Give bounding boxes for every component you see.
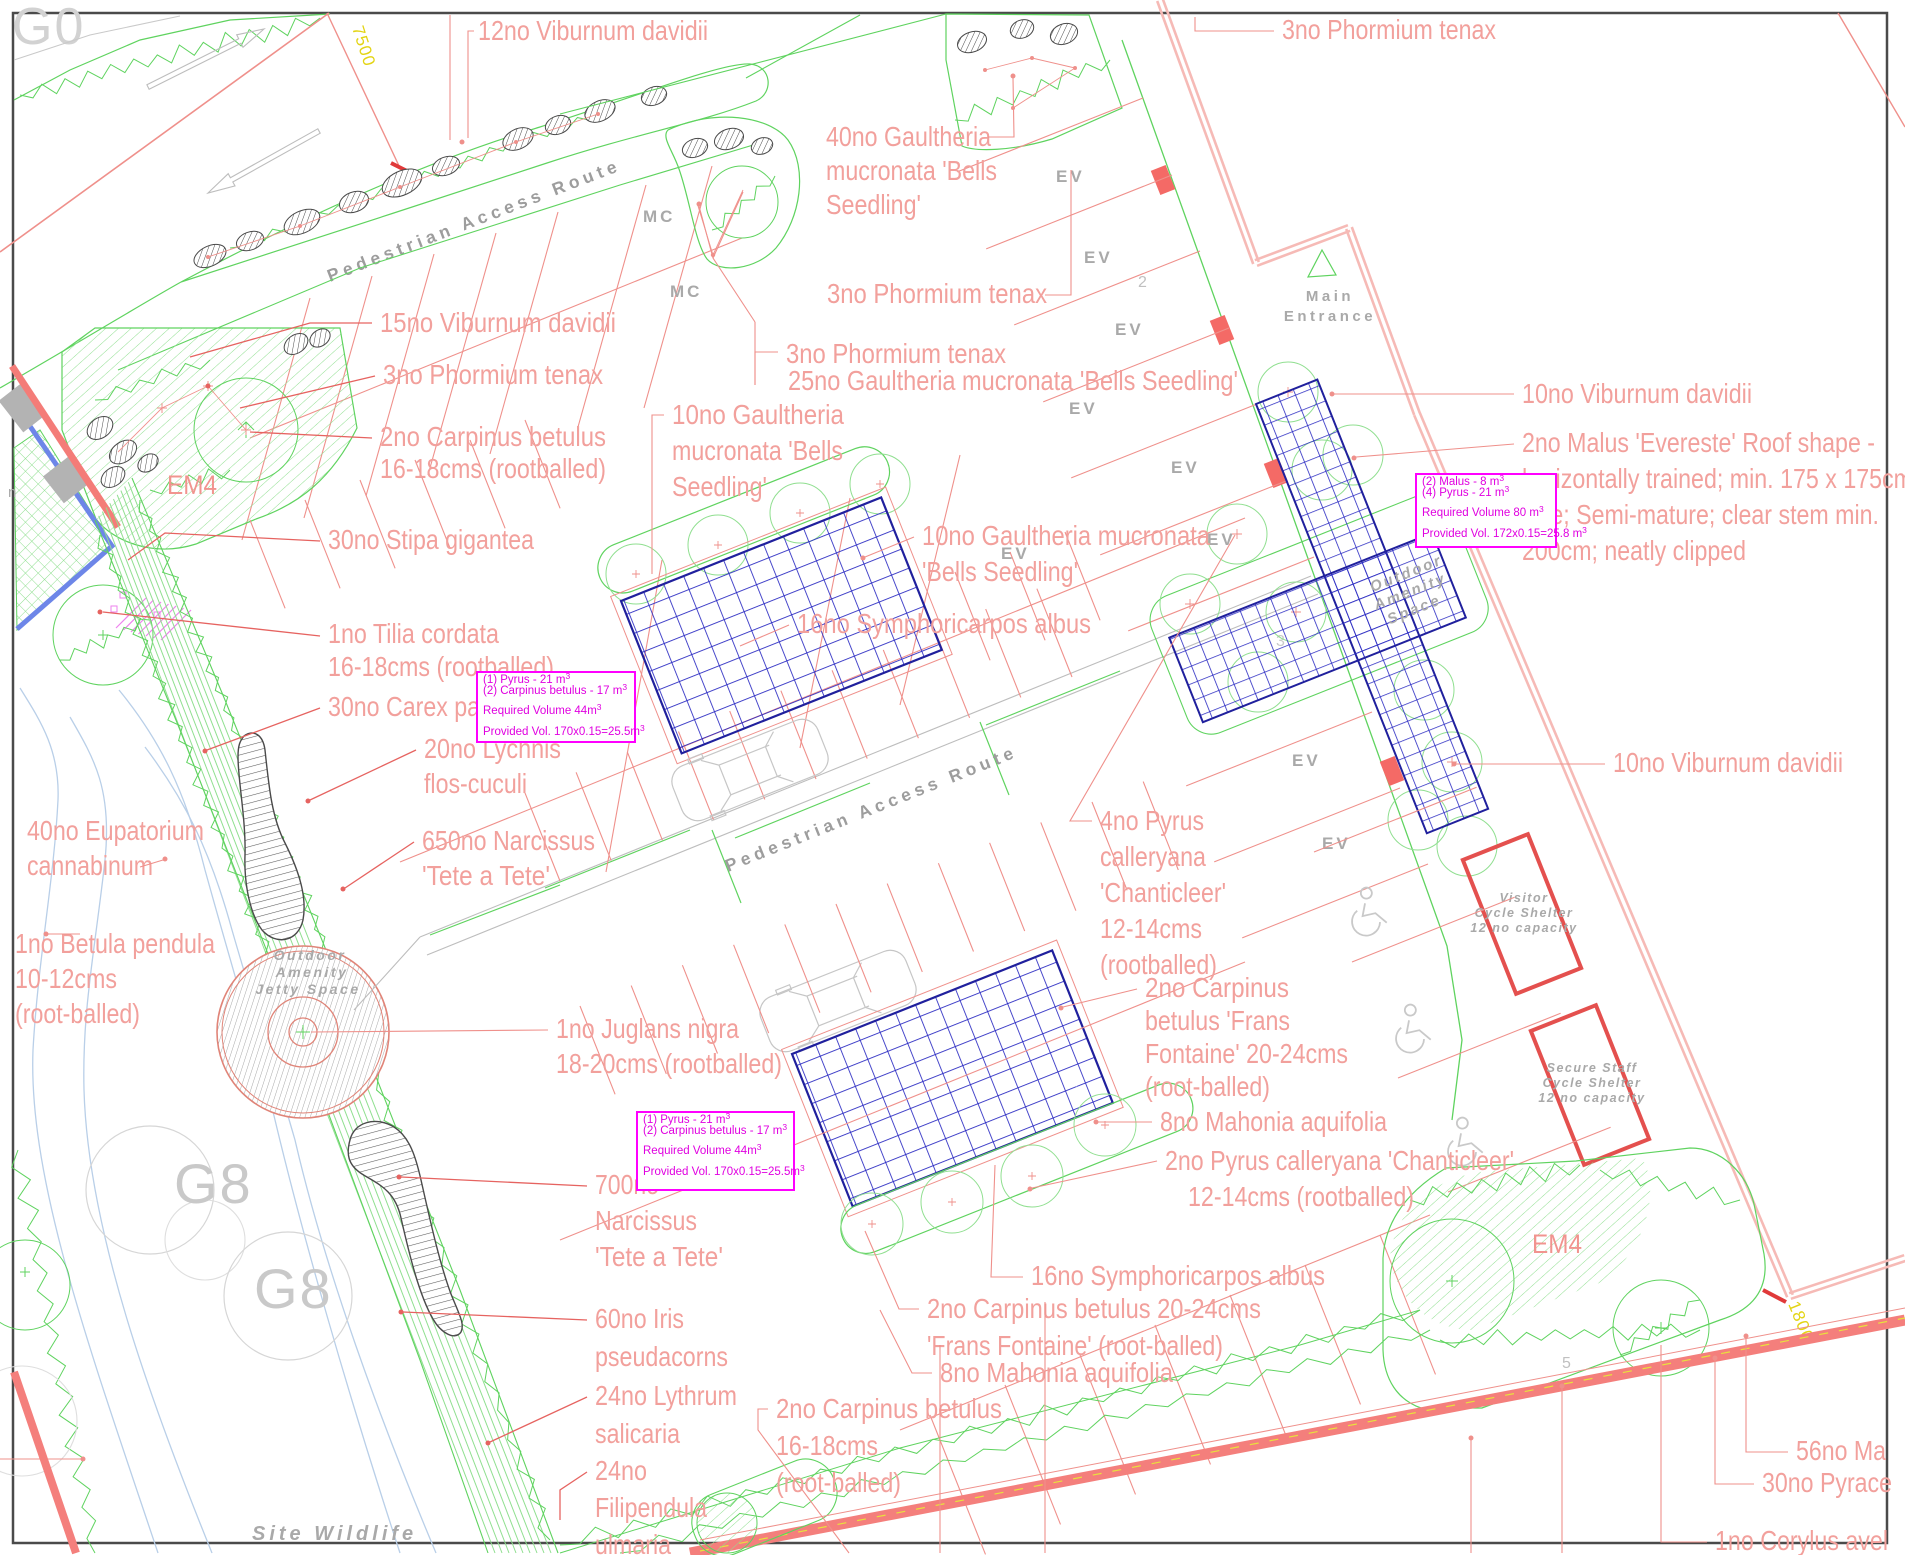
svg-text:MC: MC bbox=[670, 282, 702, 301]
svg-text:Required Volume 44m3: Required Volume 44m3 bbox=[483, 702, 602, 717]
svg-text:Narcissus: Narcissus bbox=[595, 1205, 697, 1236]
svg-text:Seedling': Seedling' bbox=[826, 189, 921, 220]
svg-text:G0: G0 bbox=[12, 0, 85, 56]
svg-text:Amenity: Amenity bbox=[275, 964, 349, 980]
svg-text:12-14cms (rootballed): 12-14cms (rootballed) bbox=[1188, 1181, 1414, 1212]
svg-text:56no Ma: 56no Ma bbox=[1796, 1435, 1886, 1466]
svg-text:Provided Vol. 172x0.15=25.8 m3: Provided Vol. 172x0.15=25.8 m3 bbox=[1422, 525, 1587, 540]
svg-text:16no Symphoricarpos albus: 16no Symphoricarpos albus bbox=[797, 608, 1091, 639]
svg-text:'Bells Seedling': 'Bells Seedling' bbox=[922, 556, 1078, 587]
svg-text:(root-balled): (root-balled) bbox=[776, 1467, 901, 1498]
svg-text:(2) Malus - 8 m3: (2) Malus - 8 m3 bbox=[1422, 473, 1504, 488]
svg-text:ulmaria: ulmaria bbox=[595, 1529, 671, 1555]
svg-text:(4) Pyrus - 21 m3: (4) Pyrus - 21 m3 bbox=[1422, 484, 1509, 499]
svg-text:12 no capacity: 12 no capacity bbox=[1538, 1091, 1645, 1105]
svg-text:15no Viburnum davidii: 15no Viburnum davidii bbox=[380, 307, 616, 338]
svg-text:3no Phormium tenax: 3no Phormium tenax bbox=[827, 278, 1047, 309]
svg-text:1no Corylus avel: 1no Corylus avel bbox=[1715, 1525, 1888, 1555]
svg-text:16no Symphoricarpos albus: 16no Symphoricarpos albus bbox=[1031, 1260, 1325, 1291]
svg-text:calleryana: calleryana bbox=[1100, 841, 1206, 872]
svg-text:(root-balled): (root-balled) bbox=[15, 998, 140, 1029]
svg-text:4no Pyrus: 4no Pyrus bbox=[1100, 805, 1204, 836]
svg-text:(2) Carpinus betulus - 17 m3: (2) Carpinus betulus - 17 m3 bbox=[483, 682, 627, 697]
svg-text:EM4: EM4 bbox=[1532, 1229, 1582, 1259]
svg-text:G8: G8 bbox=[254, 1257, 333, 1320]
svg-text:EV: EV bbox=[1069, 399, 1098, 418]
svg-text:3no Phormium tenax: 3no Phormium tenax bbox=[383, 359, 603, 390]
svg-text:650no Narcissus: 650no Narcissus bbox=[422, 825, 595, 856]
svg-text:cannabinum: cannabinum bbox=[27, 850, 153, 881]
svg-text:30no Carex pa: 30no Carex pa bbox=[328, 691, 480, 722]
svg-text:8no Mahonia aquifolia: 8no Mahonia aquifolia bbox=[1160, 1106, 1387, 1137]
svg-text:30no Pyrace: 30no Pyrace bbox=[1762, 1467, 1892, 1498]
svg-text:size; Semi-mature; clear stem: size; Semi-mature; clear stem min. bbox=[1522, 499, 1879, 530]
svg-text:2no Carpinus betulus: 2no Carpinus betulus bbox=[776, 1393, 1002, 1424]
svg-text:12 no capacity: 12 no capacity bbox=[1470, 921, 1577, 935]
svg-text:betulus 'Frans: betulus 'Frans bbox=[1145, 1005, 1290, 1036]
svg-text:Seedling': Seedling' bbox=[672, 471, 767, 502]
svg-text:10no Gaultheria mucronata: 10no Gaultheria mucronata bbox=[922, 520, 1210, 551]
svg-text:24no Lythrum: 24no Lythrum bbox=[595, 1380, 737, 1411]
svg-text:Outdoor: Outdoor bbox=[274, 947, 347, 963]
svg-text:Provided Vol. 170x0.15=25.5m3: Provided Vol. 170x0.15=25.5m3 bbox=[643, 1163, 805, 1178]
svg-text:(root-balled): (root-balled) bbox=[1145, 1071, 1270, 1102]
svg-text:horizontally trained; min. 175: horizontally trained; min. 175 x 175cm bbox=[1522, 463, 1905, 494]
svg-text:Cycle Shelter: Cycle Shelter bbox=[1543, 1076, 1642, 1090]
svg-text:10no Viburnum davidii: 10no Viburnum davidii bbox=[1522, 378, 1752, 409]
svg-text:mucronata 'Bells: mucronata 'Bells bbox=[826, 155, 997, 186]
svg-text:12no Viburnum davidii: 12no Viburnum davidii bbox=[478, 15, 708, 46]
svg-text:1no Tilia cordata: 1no Tilia cordata bbox=[328, 618, 499, 649]
svg-text:2: 2 bbox=[1138, 274, 1147, 291]
svg-text:10-12cms: 10-12cms bbox=[15, 963, 117, 994]
svg-text:n: n bbox=[8, 484, 16, 501]
svg-text:2no Carpinus betulus 20-24cms: 2no Carpinus betulus 20-24cms bbox=[927, 1293, 1261, 1324]
svg-text:'Tete a Tete': 'Tete a Tete' bbox=[595, 1241, 723, 1272]
svg-text:(1) Pyrus - 21 m3: (1) Pyrus - 21 m3 bbox=[483, 671, 570, 686]
svg-text:2no Carpinus: 2no Carpinus bbox=[1145, 972, 1289, 1003]
svg-text:Fontaine' 20-24cms: Fontaine' 20-24cms bbox=[1145, 1038, 1348, 1069]
svg-text:EV: EV bbox=[1207, 530, 1236, 549]
svg-text:Provided Vol. 170x0.15=25.5m3: Provided Vol. 170x0.15=25.5m3 bbox=[483, 723, 645, 738]
svg-text:8no Mahonia aquifolia: 8no Mahonia aquifolia bbox=[940, 1357, 1173, 1388]
svg-text:5: 5 bbox=[1562, 1355, 1571, 1372]
svg-text:24no: 24no bbox=[595, 1455, 647, 1486]
svg-text:3no Phormium tenax: 3no Phormium tenax bbox=[1282, 14, 1496, 45]
svg-text:Visitor: Visitor bbox=[1500, 891, 1549, 905]
svg-text:Entrance: Entrance bbox=[1284, 308, 1376, 325]
svg-text:EV: EV bbox=[1084, 248, 1113, 267]
svg-text:'Tete a Tete': 'Tete a Tete' bbox=[422, 860, 550, 891]
svg-text:flos-cuculi: flos-cuculi bbox=[424, 768, 527, 799]
svg-text:Filipendula: Filipendula bbox=[595, 1492, 707, 1523]
svg-text:Cycle Shelter: Cycle Shelter bbox=[1475, 906, 1574, 920]
svg-text:EV: EV bbox=[1056, 167, 1085, 186]
svg-text:Site Wildlife: Site Wildlife bbox=[252, 1523, 417, 1545]
svg-text:MC: MC bbox=[643, 207, 675, 226]
svg-text:pseudacorns: pseudacorns bbox=[595, 1341, 728, 1372]
svg-text:EM4: EM4 bbox=[167, 470, 217, 500]
svg-text:10no Viburnum davidii: 10no Viburnum davidii bbox=[1613, 747, 1843, 778]
svg-text:18-20cms (rootballed): 18-20cms (rootballed) bbox=[556, 1048, 782, 1079]
svg-text:10no Gaultheria: 10no Gaultheria bbox=[672, 399, 844, 430]
svg-text:2no Pyrus calleryana 'Chanticl: 2no Pyrus calleryana 'Chanticleer' bbox=[1165, 1145, 1514, 1176]
svg-text:EV: EV bbox=[1171, 458, 1200, 477]
svg-text:1no Juglans nigra: 1no Juglans nigra bbox=[556, 1013, 739, 1044]
svg-text:'Chanticleer': 'Chanticleer' bbox=[1100, 877, 1226, 908]
svg-text:2no Malus 'Evereste' Roof shap: 2no Malus 'Evereste' Roof shape - bbox=[1522, 427, 1875, 458]
svg-text:EV: EV bbox=[1292, 751, 1321, 770]
svg-text:mucronata 'Bells: mucronata 'Bells bbox=[672, 435, 843, 466]
svg-text:G8: G8 bbox=[174, 1152, 253, 1215]
svg-text:Required Volume 80 m3: Required Volume 80 m3 bbox=[1422, 504, 1544, 519]
svg-text:(1) Pyrus - 21 m3: (1) Pyrus - 21 m3 bbox=[643, 1111, 730, 1126]
svg-text:25no Gaultheria mucronata 'Be: 25no Gaultheria mucronata 'Bells Seedlin… bbox=[788, 365, 1238, 396]
svg-text:60no Iris: 60no Iris bbox=[595, 1303, 684, 1334]
svg-text:(2) Carpinus betulus - 17 m3: (2) Carpinus betulus - 17 m3 bbox=[643, 1122, 787, 1137]
svg-text:EV: EV bbox=[1115, 320, 1144, 339]
svg-text:16-18cms (rootballed): 16-18cms (rootballed) bbox=[380, 453, 606, 484]
svg-text:16-18cms: 16-18cms bbox=[776, 1430, 878, 1461]
svg-text:40no Gaultheria: 40no Gaultheria bbox=[826, 121, 991, 152]
svg-text:Jetty Space: Jetty Space bbox=[255, 981, 360, 997]
svg-text:Main: Main bbox=[1306, 288, 1354, 305]
svg-text:Secure Staff: Secure Staff bbox=[1547, 1061, 1638, 1075]
svg-text:30no Stipa gigantea: 30no Stipa gigantea bbox=[328, 524, 534, 555]
svg-text:Required Volume 44m3: Required Volume 44m3 bbox=[643, 1142, 762, 1157]
svg-text:12-14cms: 12-14cms bbox=[1100, 913, 1202, 944]
svg-text:2no Carpinus betulus: 2no Carpinus betulus bbox=[380, 421, 606, 452]
svg-text:salicaria: salicaria bbox=[595, 1418, 680, 1449]
svg-text:40no Eupatorium: 40no Eupatorium bbox=[27, 815, 204, 846]
